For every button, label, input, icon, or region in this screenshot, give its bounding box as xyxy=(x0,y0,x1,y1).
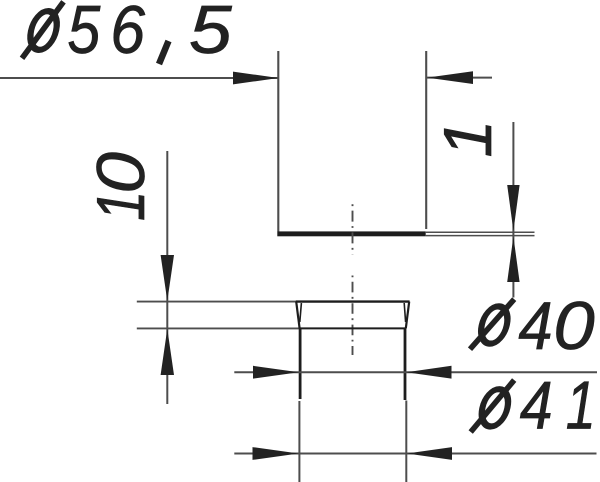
svg-text:5: 5 xyxy=(189,0,232,68)
svg-text:1: 1 xyxy=(83,191,159,221)
svg-text:0: 0 xyxy=(553,288,595,364)
svg-text:6: 6 xyxy=(110,0,145,68)
svg-text:1: 1 xyxy=(430,120,506,158)
svg-text:5: 5 xyxy=(67,0,100,68)
svg-text:4: 4 xyxy=(518,287,552,364)
svg-text:1: 1 xyxy=(566,368,596,444)
svg-text:4: 4 xyxy=(520,367,553,444)
svg-text:0: 0 xyxy=(83,152,159,194)
